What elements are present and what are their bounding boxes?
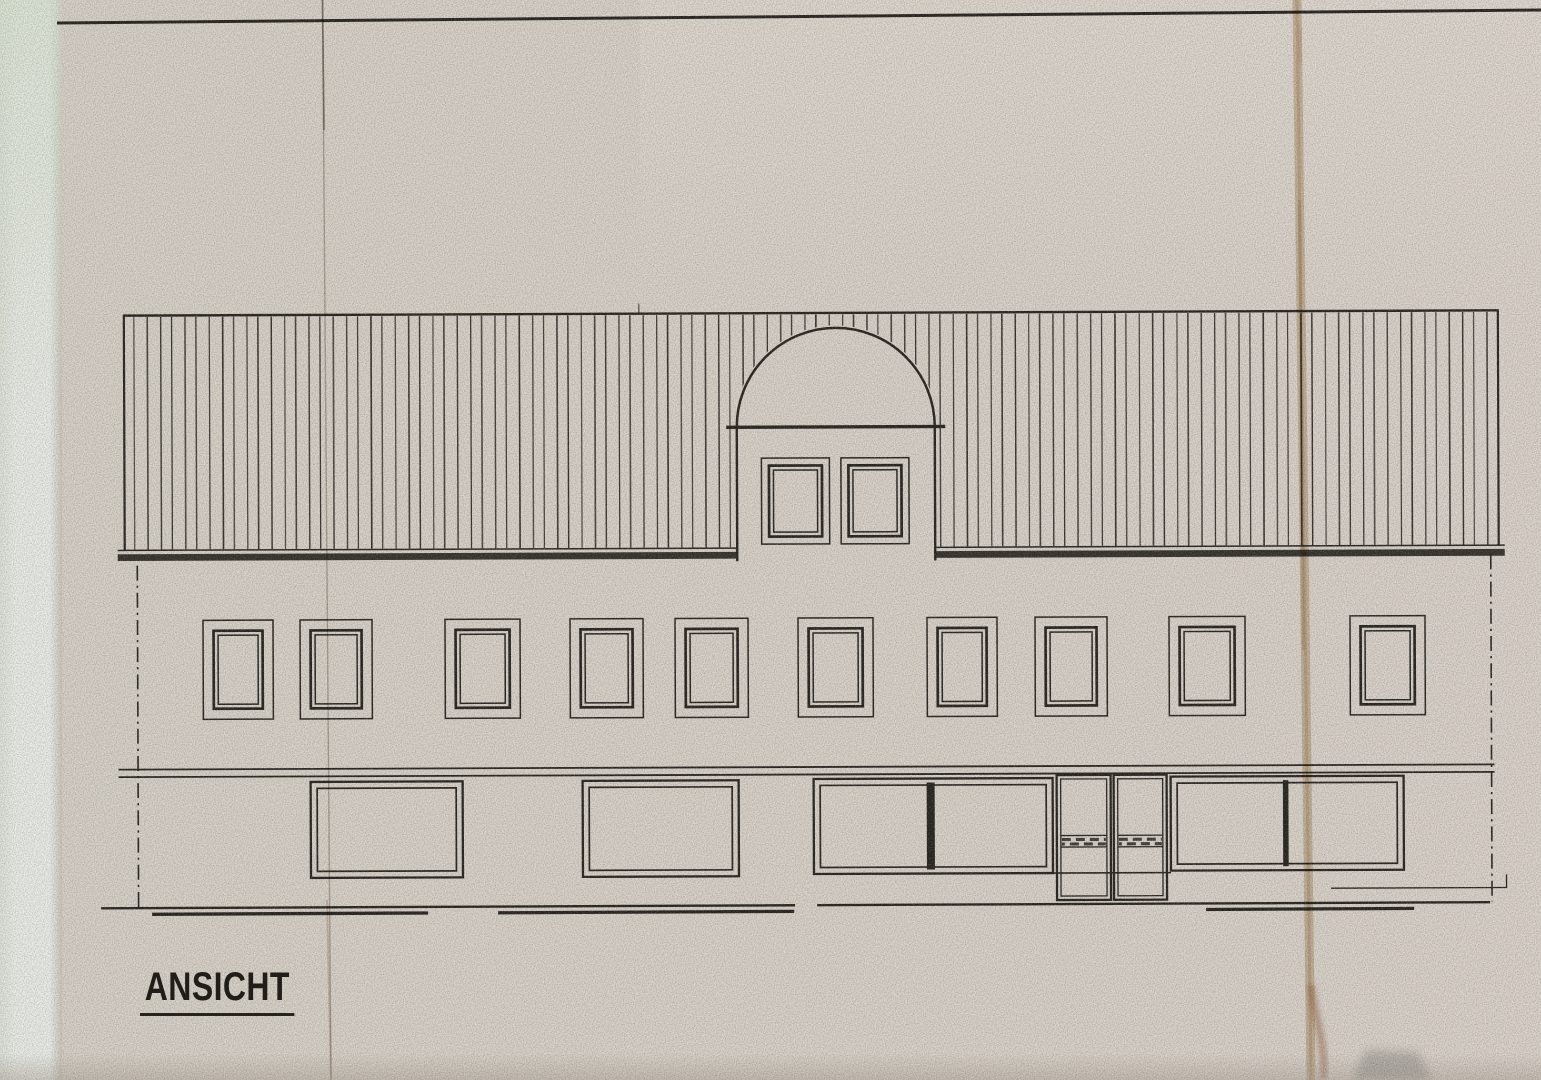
paper-grain-light xyxy=(0,0,1541,1080)
elevation-canvas xyxy=(0,0,1541,1080)
drawing-title: ANSICHT xyxy=(140,966,295,1016)
scanned-drawing-page: ANSICHT xyxy=(0,0,1541,1080)
